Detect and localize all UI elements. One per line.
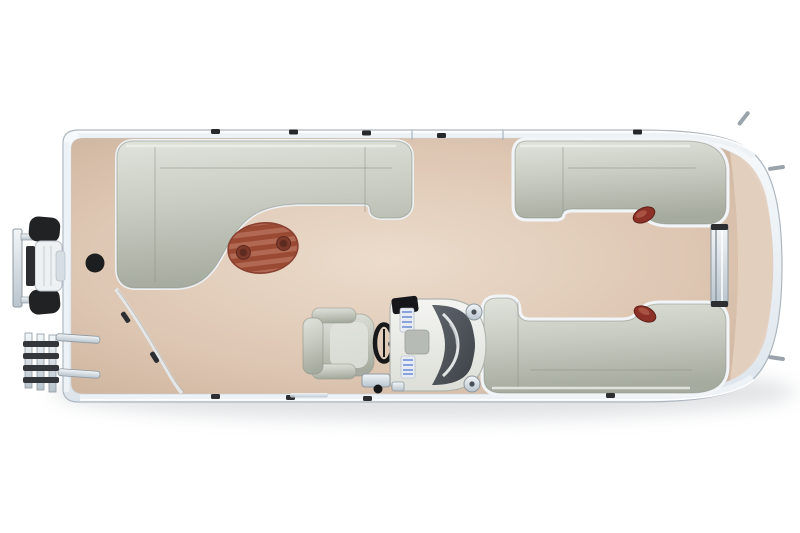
- cleat: [289, 130, 298, 135]
- stern-pin-bottom: [768, 355, 785, 361]
- cleat: [633, 130, 642, 135]
- pontoon-floorplan-render: [0, 0, 800, 533]
- stern-lounge-top: [515, 141, 726, 224]
- cleat: [211, 394, 220, 399]
- rail-chrome-strip: [290, 393, 328, 398]
- gauge-strip-upper: [400, 308, 414, 332]
- motor-fin-top: [28, 216, 61, 244]
- cleat: [362, 131, 371, 136]
- chair-seat-cushion: [330, 322, 368, 368]
- helm-console: [390, 295, 486, 392]
- stern-pin-top: [768, 165, 785, 171]
- gauge-strip-lower: [401, 356, 415, 378]
- table-pedestal-mount: [86, 254, 105, 273]
- boat-render-canvas: [0, 0, 800, 533]
- cleat: [211, 129, 220, 134]
- stern-gate: [711, 224, 728, 307]
- console-pad: [405, 330, 429, 354]
- stern-pin-corner: [737, 110, 751, 126]
- cleat: [606, 393, 615, 398]
- trolling-motor: [13, 216, 65, 316]
- chair-backrest: [303, 318, 323, 374]
- cleat: [437, 133, 446, 138]
- motor-fin-bottom: [28, 288, 61, 316]
- captains-chair: [303, 308, 374, 379]
- cleat: [363, 396, 372, 401]
